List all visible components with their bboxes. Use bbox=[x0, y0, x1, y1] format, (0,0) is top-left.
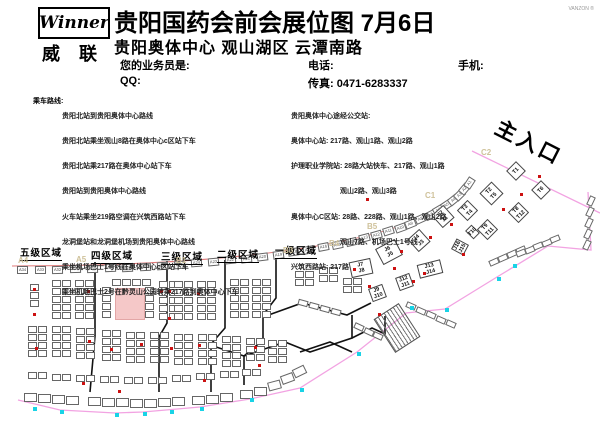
phone-label: 电话: bbox=[308, 57, 334, 73]
booth-small bbox=[353, 286, 362, 293]
booth-small bbox=[174, 313, 183, 320]
booth-small bbox=[62, 334, 71, 341]
company-name: 威 联 bbox=[42, 40, 104, 66]
route-line: 乘坐机场巴士1号线在奥体中心c区站下车 bbox=[62, 264, 239, 272]
booth-small bbox=[582, 239, 592, 251]
booth-small bbox=[240, 295, 249, 302]
fax-label: 传真: 0471-6283337 bbox=[308, 75, 408, 91]
cyan-dot bbox=[170, 410, 174, 414]
booth-small bbox=[208, 358, 217, 365]
booth-small bbox=[145, 311, 154, 318]
booth-label: T10 bbox=[467, 226, 478, 237]
venue-subtitle: 贵阳奥体中心 观山湖区 云潭南路 bbox=[114, 34, 363, 58]
zone-letter-A4: A4 bbox=[18, 256, 28, 265]
booth-small bbox=[38, 350, 47, 357]
booth-small bbox=[240, 311, 249, 318]
booth-small bbox=[256, 338, 265, 345]
bus-stop-line: 贵阳奥体中心途经公交站: bbox=[291, 113, 447, 121]
booth-small bbox=[136, 348, 145, 355]
booth-small bbox=[184, 313, 193, 320]
cyan-dot bbox=[143, 412, 147, 416]
booth-small bbox=[38, 326, 47, 333]
qq-label: QQ: bbox=[120, 75, 141, 87]
booth-small bbox=[252, 295, 261, 302]
booth-T8-T12: T8T12 bbox=[507, 201, 528, 222]
booth-small bbox=[585, 206, 595, 218]
booth-small bbox=[252, 287, 261, 294]
route-line: 贵阳北站乘坐观山8路在奥体中心c区站下车 bbox=[62, 138, 239, 146]
booth-small bbox=[76, 336, 85, 343]
booth-small bbox=[256, 354, 265, 361]
booth-small bbox=[124, 377, 133, 384]
bus-routes-label: 乘车路线: bbox=[33, 96, 63, 106]
booth-small bbox=[308, 302, 319, 310]
booth-small bbox=[232, 352, 241, 359]
booth-small bbox=[174, 342, 183, 349]
booth-small bbox=[62, 342, 71, 349]
red-dot bbox=[198, 344, 201, 347]
booth-small bbox=[297, 299, 308, 307]
booth-small bbox=[268, 348, 277, 355]
booth-small bbox=[267, 379, 282, 391]
booth-label: T6 bbox=[537, 186, 546, 195]
winner-logo: Winner bbox=[38, 7, 110, 39]
red-dot bbox=[502, 208, 505, 211]
booth-small bbox=[172, 397, 185, 406]
booth-small bbox=[150, 356, 159, 363]
red-dot bbox=[520, 193, 523, 196]
booth-small bbox=[102, 354, 111, 361]
booth-small bbox=[208, 334, 217, 341]
booth-small bbox=[28, 350, 37, 357]
red-dot bbox=[170, 347, 173, 350]
booth-small bbox=[184, 342, 193, 349]
booth-small bbox=[150, 340, 159, 347]
booth-small bbox=[252, 303, 261, 310]
booth-small bbox=[134, 377, 143, 384]
booth-small bbox=[76, 375, 85, 382]
booth-T9-T11: T9T11 bbox=[476, 218, 497, 239]
booth-small bbox=[136, 356, 145, 363]
bus-stop-line: 护理职业学院站: 28路大站快车、217路、观山1路 bbox=[291, 163, 447, 171]
booth-small bbox=[86, 375, 95, 382]
booth-small bbox=[230, 311, 239, 318]
booth-small bbox=[52, 280, 61, 287]
booth-small bbox=[150, 348, 159, 355]
booth-small bbox=[230, 371, 239, 378]
red-dot bbox=[462, 253, 465, 256]
red-dot bbox=[35, 347, 38, 350]
booth-small bbox=[222, 344, 231, 351]
booth-small bbox=[198, 334, 207, 341]
red-dot bbox=[118, 390, 121, 393]
cyan-dot bbox=[513, 264, 517, 268]
booth-small bbox=[52, 350, 61, 357]
booth-small bbox=[100, 376, 109, 383]
booth-small bbox=[102, 338, 111, 345]
booth-small bbox=[102, 311, 111, 318]
booth-small bbox=[86, 352, 95, 359]
booth-small bbox=[174, 358, 183, 365]
booth-T6: T6 bbox=[531, 180, 551, 200]
cyan-dot bbox=[445, 308, 449, 312]
booth-small bbox=[148, 377, 157, 384]
booth-small bbox=[112, 338, 121, 345]
booth-small bbox=[126, 348, 135, 355]
booth-small bbox=[62, 374, 71, 381]
booth-small bbox=[197, 313, 206, 320]
booth-small bbox=[232, 360, 241, 367]
main-entrance-label: 主入口 bbox=[490, 112, 568, 171]
booth-small bbox=[158, 398, 171, 407]
booth-small bbox=[254, 387, 267, 396]
booth-small bbox=[184, 334, 193, 341]
booth-small bbox=[110, 376, 119, 383]
booth-small bbox=[246, 338, 255, 345]
booth-small bbox=[208, 342, 217, 349]
booth-small bbox=[252, 279, 261, 286]
booth-small bbox=[268, 356, 277, 363]
booth-small bbox=[85, 312, 94, 319]
booth-small bbox=[76, 352, 85, 359]
booth-small bbox=[30, 300, 39, 307]
booth-small bbox=[62, 312, 71, 319]
booth-small bbox=[262, 295, 271, 302]
booth-small bbox=[116, 398, 129, 407]
booth-small bbox=[159, 313, 168, 320]
booth-label: T1 bbox=[512, 167, 521, 176]
booth-small bbox=[136, 332, 145, 339]
booth-small bbox=[38, 342, 47, 349]
booth-small bbox=[262, 279, 271, 286]
booth-small bbox=[549, 234, 561, 243]
booth-small bbox=[28, 334, 37, 341]
booth-small bbox=[88, 397, 101, 406]
bus-routes-left: 贵阳北站到贵阳奥体中心路线 贵阳北站乘坐观山8路在奥体中心c区站下车 贵阳北站乘… bbox=[62, 96, 239, 306]
booth-small bbox=[207, 313, 216, 320]
booth-small bbox=[144, 399, 157, 408]
booth-A33: A33 bbox=[35, 266, 46, 274]
booth-small bbox=[232, 344, 241, 351]
booth-small bbox=[66, 396, 79, 405]
red-dot bbox=[88, 340, 91, 343]
booth-small bbox=[184, 358, 193, 365]
booth-small bbox=[38, 394, 51, 403]
booth-small bbox=[583, 228, 593, 240]
booth-small bbox=[206, 395, 219, 404]
cyan-dot bbox=[200, 407, 204, 411]
booth-small bbox=[52, 334, 61, 341]
booth-small bbox=[256, 346, 265, 353]
cyan-dot bbox=[357, 352, 361, 356]
booth-small bbox=[160, 340, 169, 347]
cyan-dot bbox=[115, 413, 119, 417]
cyan-dot bbox=[250, 398, 254, 402]
red-dot bbox=[368, 285, 371, 288]
zone-letter-C2: C2 bbox=[481, 148, 491, 157]
booth-small bbox=[52, 304, 61, 311]
booth-small bbox=[24, 393, 37, 402]
booth-small bbox=[102, 330, 111, 337]
booth-small bbox=[172, 375, 181, 382]
booth-small bbox=[208, 350, 217, 357]
booth-small bbox=[76, 328, 85, 335]
route-line: 龙洞堡站和龙洞堡机场到贵阳奥体中心路线 bbox=[62, 239, 239, 247]
booth-small bbox=[150, 332, 159, 339]
cyan-dot bbox=[410, 306, 414, 310]
booth-small bbox=[222, 352, 231, 359]
route-line: 乘坐机场巴士2号在黔灵山公园转乘217路到奥体中心下车 bbox=[62, 289, 239, 297]
red-dot bbox=[33, 313, 36, 316]
booth-small bbox=[268, 340, 277, 347]
booth-small bbox=[330, 308, 341, 316]
corner-logo: VANZON ® bbox=[568, 6, 594, 12]
route-line: 贵阳站到贵阳奥体中心路线 bbox=[62, 188, 239, 196]
booth-small bbox=[192, 396, 205, 405]
booth-small bbox=[174, 334, 183, 341]
booth-small bbox=[220, 393, 233, 402]
booth-small bbox=[160, 348, 169, 355]
booth-small bbox=[52, 395, 65, 404]
cyan-dot bbox=[497, 277, 501, 281]
booth-small bbox=[198, 358, 207, 365]
booth-small bbox=[278, 356, 287, 363]
booth-small bbox=[126, 340, 135, 347]
booth-small bbox=[30, 292, 39, 299]
red-dot bbox=[110, 348, 113, 351]
booth-small bbox=[240, 279, 249, 286]
booth-small bbox=[445, 319, 457, 329]
booth-small bbox=[112, 330, 121, 337]
booth-small bbox=[28, 326, 37, 333]
booth-J16-J15: J16J15 bbox=[451, 238, 469, 255]
booth-small bbox=[102, 398, 115, 407]
red-dot bbox=[203, 379, 206, 382]
winner-logo-text: Winner bbox=[39, 13, 109, 33]
booth-small bbox=[343, 286, 352, 293]
booth-small bbox=[86, 344, 95, 351]
booth-small bbox=[52, 342, 61, 349]
booth-small bbox=[52, 288, 61, 295]
booth-T2-T5: T2T5 bbox=[479, 181, 503, 205]
red-dot bbox=[33, 288, 36, 291]
booth-small bbox=[158, 377, 167, 384]
bus-stops-right: 贵阳奥体中心途经公交站: 奥体中心站: 217路、观山1路、观山2路 护理职业学… bbox=[291, 96, 447, 281]
booth-small bbox=[62, 350, 71, 357]
booth-small bbox=[52, 312, 61, 319]
red-dot bbox=[168, 317, 171, 320]
booth-small bbox=[52, 296, 61, 303]
booth-small bbox=[28, 372, 37, 379]
booth-small bbox=[278, 348, 287, 355]
red-dot bbox=[450, 223, 453, 226]
booth-small bbox=[584, 217, 594, 229]
booth-small bbox=[240, 303, 249, 310]
booth-small bbox=[262, 303, 271, 310]
booth-small bbox=[62, 326, 71, 333]
bus-stop-line: 奥体中心站: 217路、观山1路、观山2路 bbox=[291, 138, 447, 146]
booth-small bbox=[262, 287, 271, 294]
booth-small bbox=[252, 369, 261, 376]
agent-label: 您的业务员是: bbox=[120, 57, 190, 73]
booth-small bbox=[174, 350, 183, 357]
bus-stop-line: 观山2路、观山3路 bbox=[291, 188, 447, 196]
booth-small bbox=[240, 287, 249, 294]
booth-small bbox=[220, 371, 229, 378]
route-line: 贵阳北站乘217路在奥体中心站下车 bbox=[62, 163, 239, 171]
red-dot bbox=[254, 346, 257, 349]
booth-label: J11 bbox=[400, 280, 410, 289]
red-dot bbox=[258, 364, 261, 367]
booth-small bbox=[112, 346, 121, 353]
booth-A34: A34 bbox=[17, 266, 28, 274]
red-dot bbox=[378, 313, 381, 316]
booth-small bbox=[75, 312, 84, 319]
booth-small bbox=[252, 311, 261, 318]
booth-small bbox=[292, 365, 308, 379]
booth-small bbox=[222, 360, 231, 367]
booth-small bbox=[184, 350, 193, 357]
booth-small bbox=[198, 350, 207, 357]
page-title: 贵阳国药会前会展位图 7月6日 bbox=[114, 3, 435, 38]
booth-small bbox=[232, 336, 241, 343]
red-dot bbox=[140, 343, 143, 346]
bus-stop-line: 观山7路、机场巴士1号线 bbox=[291, 239, 447, 247]
booth-small bbox=[262, 311, 271, 318]
route-line: 火车站乘坐219路空调在兴筑西路站下车 bbox=[62, 214, 239, 222]
booth-small bbox=[38, 334, 47, 341]
bus-stop-line: 奥体中心C区站: 28路、228路、观山1路、观山2路 bbox=[291, 214, 447, 222]
booth-small bbox=[242, 369, 251, 376]
booth-small bbox=[52, 374, 61, 381]
booth-small bbox=[52, 326, 61, 333]
red-dot bbox=[538, 175, 541, 178]
mobile-label: 手机: bbox=[458, 57, 484, 73]
booth-small bbox=[319, 305, 330, 313]
booth-small bbox=[160, 356, 169, 363]
booth-small bbox=[206, 373, 215, 380]
booth-small bbox=[126, 332, 135, 339]
booth-small bbox=[130, 399, 143, 408]
booth-small bbox=[112, 354, 121, 361]
booth-small bbox=[160, 332, 169, 339]
booth-small bbox=[246, 354, 255, 361]
cyan-dot bbox=[33, 407, 37, 411]
bus-stop-line: 兴筑西路站: 217路 bbox=[291, 264, 447, 272]
booth-small bbox=[586, 195, 596, 207]
red-dot bbox=[82, 382, 85, 385]
booth-small bbox=[182, 375, 191, 382]
booth-small bbox=[278, 340, 287, 347]
booth-small bbox=[76, 344, 85, 351]
booth-small bbox=[86, 328, 95, 335]
booth-T3-T4: T3T4 bbox=[456, 199, 477, 220]
booth-small bbox=[126, 356, 135, 363]
booth-T1: T1 bbox=[506, 161, 526, 181]
booth-T10: T10 bbox=[465, 225, 480, 240]
route-line: 贵阳北站到贵阳奥体中心路线 bbox=[62, 113, 239, 121]
cyan-dot bbox=[300, 388, 304, 392]
booth-small bbox=[38, 372, 47, 379]
cyan-dot bbox=[60, 410, 64, 414]
booth-small bbox=[222, 336, 231, 343]
